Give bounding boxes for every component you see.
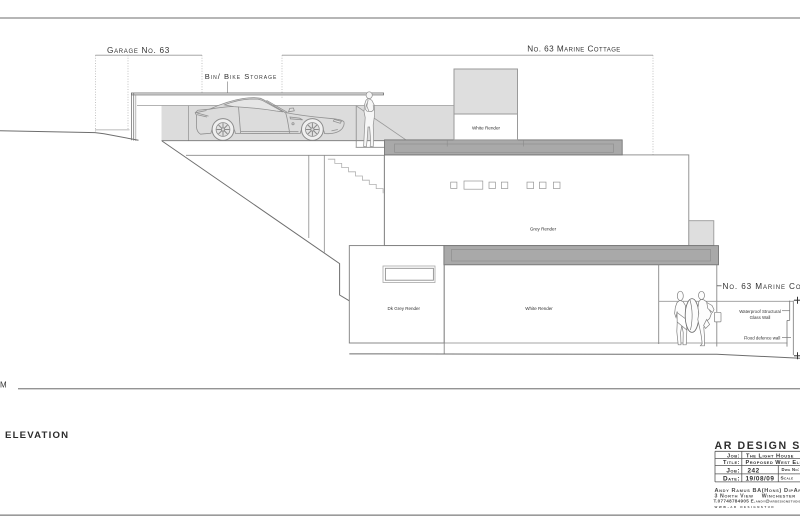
svg-text:Dwg No:: Dwg No: [782, 467, 800, 472]
svg-text:19/08/09: 19/08/09 [746, 475, 775, 482]
svg-text:Dk Grey Render: Dk Grey Render [388, 306, 421, 311]
svg-text:The Light House: The Light House [746, 453, 794, 459]
svg-text:Job:: Job: [726, 468, 740, 475]
svg-text:242: 242 [748, 468, 760, 475]
svg-text:Proposed West Elevation: Proposed West Elevation [746, 460, 800, 466]
svg-text:Grey Render: Grey Render [530, 227, 557, 232]
svg-text:M: M [0, 381, 8, 390]
svg-text:Garage No. 63: Garage No. 63 [107, 46, 170, 55]
svg-text:Flood defence wall: Flood defence wall [744, 336, 781, 341]
svg-text:Scale: Scale [781, 476, 794, 482]
svg-text:www.ar designstud: www.ar designstud [715, 504, 776, 509]
svg-text:ELEVATION: ELEVATION [5, 430, 69, 441]
svg-text:No. 63 Marine Cottage: No. 63 Marine Cottage [527, 45, 621, 54]
svg-text:White Render: White Render [472, 126, 501, 131]
svg-text:No. 63 Marine Cottage: No. 63 Marine Cottage [723, 282, 800, 291]
svg-text:AR DESIGN STUDIO: AR DESIGN STUDIO [715, 440, 800, 452]
svg-text:White Render: White Render [525, 306, 553, 311]
svg-text:Bin/ Bike Storage: Bin/ Bike Storage [205, 72, 278, 81]
svg-text:Job:: Job: [727, 453, 740, 459]
svg-text:T.07748784905 E.andy@ardesigns: T.07748784905 E.andy@ardesignstudio.c [714, 499, 800, 504]
svg-text:Waterproof Structural: Waterproof Structural [739, 309, 781, 314]
svg-text:Title:: Title: [723, 460, 740, 466]
svg-text:Glass Wall: Glass Wall [750, 315, 771, 320]
svg-text:Date:: Date: [723, 475, 740, 482]
